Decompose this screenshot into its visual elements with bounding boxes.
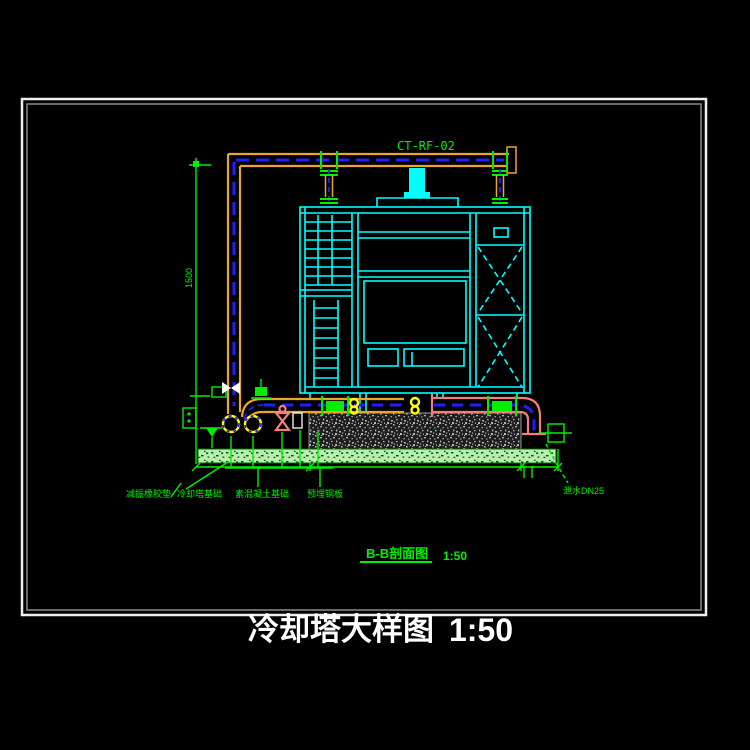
cad-canvas: CT-RF-02 <box>0 0 750 750</box>
butterfly-valve-icon <box>222 382 240 394</box>
check-valve-icon <box>276 406 289 430</box>
legend-box <box>183 408 196 428</box>
access-ladder <box>314 300 338 387</box>
cooling-tower <box>300 168 530 413</box>
casing-panels <box>358 232 470 366</box>
label-tower-foundation: 冷却塔基础 <box>177 488 222 499</box>
pipe-end-flange <box>507 147 516 173</box>
anchor-detail <box>540 424 572 442</box>
gauge-white <box>293 413 302 428</box>
valve-green-left <box>326 401 344 411</box>
section-title: B-B剖面图 1:50 <box>360 546 467 563</box>
section-label: B-B剖面图 <box>366 546 428 561</box>
pipe-tag-label: CT-RF-02 <box>397 139 455 153</box>
fitting-green <box>255 387 267 396</box>
drawing-title: 冷却塔大样图 1:50 <box>248 612 513 648</box>
fan-cowl <box>377 198 458 207</box>
concrete-block <box>309 413 521 449</box>
label-concrete-base: 素混凝土基础 <box>235 488 289 499</box>
annotation-labels: 减振橡胶垫 冷却塔基础 素混凝土基础 预埋钢板 泄水DN25 <box>126 485 604 499</box>
title-text: 冷却塔大样图 <box>248 612 434 647</box>
title-scale: 1:50 <box>449 612 513 648</box>
foundation <box>198 413 556 463</box>
section-scale: 1:50 <box>443 549 467 563</box>
label-drain: 泄水DN25 <box>563 485 604 496</box>
label-vibration-pad: 减振橡胶垫 <box>126 488 171 499</box>
border-frame <box>22 99 706 615</box>
elevation-marker <box>200 428 222 448</box>
louver-grid <box>300 215 352 296</box>
braced-column <box>476 228 524 387</box>
valve-green-right <box>492 401 512 411</box>
label-embed-plate: 预埋钢板 <box>307 488 343 499</box>
cad-drawing: CT-RF-02 <box>0 0 750 750</box>
dim-text-left: 1500 <box>184 268 194 288</box>
fan-motor <box>409 168 425 192</box>
ground-band <box>198 449 556 463</box>
